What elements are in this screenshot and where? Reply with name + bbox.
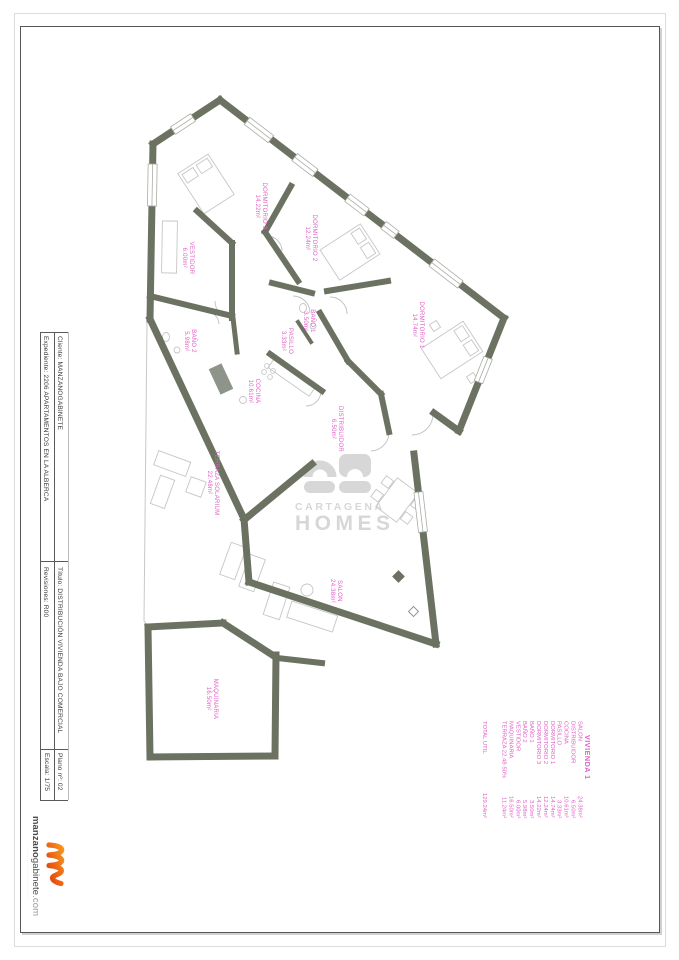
room-label: DISTRIBUIDOR 6.50m²	[329, 406, 343, 452]
room-label: DORMITORIO 3 14.22m²	[253, 183, 267, 230]
titleblock-line	[40, 561, 68, 562]
titleblock-plano: Plano nº: 02	[56, 753, 63, 791]
titleblock-line	[40, 749, 68, 750]
room-label: TERRAZA SOLARIUM 22.48m²	[205, 451, 219, 516]
titleblock-line	[40, 332, 68, 333]
legend-title: VIVIENDA 1	[583, 735, 592, 780]
logo-brand-rest: gabinete	[30, 858, 41, 895]
logo-tagline: ····························	[25, 846, 29, 901]
room-label: DORMITORIO 2 12.24m²	[303, 215, 317, 262]
legend-total-label: TOTAL UTIL	[480, 721, 487, 754]
logo-wordmark: manzanogabinete.com	[30, 816, 41, 916]
titleblock-escala: Escala: 1/75	[43, 753, 50, 791]
labels-layer: DORMITORIO 3 14.22m² DORMITORIO 2 12.24m…	[0, 0, 679, 960]
titleblock-line	[40, 332, 41, 800]
titleblock-line	[40, 800, 68, 801]
room-label: COCINA 10.61m²	[246, 379, 260, 404]
manzano-m-logo-icon	[44, 841, 70, 887]
logo-brand-bold: manzano	[30, 816, 41, 858]
room-label: DORMITORIO 1 14.74m²	[410, 302, 424, 349]
room-label: BAÑO 1 3.50m²	[301, 309, 315, 333]
titleblock-line	[54, 332, 55, 800]
legend-total-value: 129.24m²	[480, 793, 487, 818]
room-label: PASILLO 3.33m²	[279, 328, 293, 354]
room-label: BAÑO 2 5.98m²	[182, 329, 196, 353]
titleblock-line	[68, 332, 69, 800]
titleblock-titulo: Título: DISTRIBUCIÓN VIVIENDA BAJO COMER…	[56, 567, 63, 733]
titleblock-expediente: Expediente: 2206 APARTAMENTOS EN LA ALBE…	[42, 336, 49, 501]
room-label: MAQUINARIA 16.50m²	[204, 679, 218, 720]
logo-brand-tld: .com	[30, 895, 41, 916]
titleblock-revisiones: Revisiones: R00	[42, 567, 49, 617]
titleblock-cliente: Cliente: MANZANOGABINETE	[56, 336, 63, 430]
plan-sheet-page: CARTAGENA HOMES	[0, 0, 679, 960]
room-label: SALON 24.38m²	[328, 579, 342, 603]
room-label: VESTIDOR 6.00m²	[180, 242, 194, 275]
